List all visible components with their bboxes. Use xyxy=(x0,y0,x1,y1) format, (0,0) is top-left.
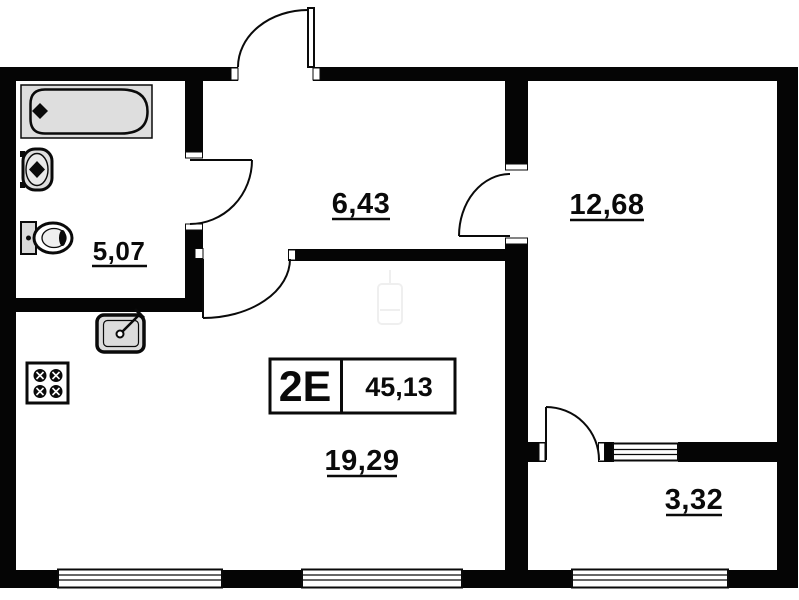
label-balcony: 3,32 xyxy=(665,484,723,516)
wall-bathroom-right-upper xyxy=(185,81,203,158)
unit-total-area: 45,13 xyxy=(365,372,433,402)
wall-bathroom-bottom xyxy=(0,298,203,312)
door-bathroom xyxy=(190,160,252,224)
toilet xyxy=(21,222,72,254)
label-living-kitchen: 19,29 xyxy=(324,445,399,477)
bathroom-area-label: 5,07 xyxy=(93,236,146,266)
bathtub xyxy=(21,85,152,138)
unit-info-box: 2E 45,13 xyxy=(270,359,455,413)
kitchen-sink xyxy=(97,309,144,352)
wall-living-top xyxy=(288,249,507,261)
wall-left xyxy=(0,67,16,588)
door-balcony xyxy=(546,407,599,460)
window-balcony-wall xyxy=(613,444,678,461)
door-entrance xyxy=(238,8,314,67)
wall-bottom-2 xyxy=(222,570,302,588)
sink-drain xyxy=(117,331,124,338)
stove xyxy=(27,363,68,403)
label-bathroom: 5,07 xyxy=(92,236,147,266)
bedroom-area-label: 12,68 xyxy=(569,189,644,221)
window-living xyxy=(302,570,462,588)
door-bedroom xyxy=(459,174,510,236)
wall-divider-upper xyxy=(505,81,528,170)
floor-plan: 5,07 6,43 12,68 19,29 3,32 2E 45,13 xyxy=(0,0,799,600)
wall-divider-lower xyxy=(505,238,528,587)
wall-bottom-4 xyxy=(728,570,798,588)
wall-bottom-1 xyxy=(0,570,58,588)
label-bedroom: 12,68 xyxy=(569,189,644,221)
hallway-area-label: 6,43 xyxy=(332,188,390,220)
unit-type-label: 2E xyxy=(279,363,332,411)
balcony-area-label: 3,32 xyxy=(665,484,723,516)
washbasin xyxy=(20,149,52,190)
window-balcony-bottom xyxy=(572,570,728,588)
wall-right xyxy=(777,67,798,588)
watermark-mark xyxy=(378,270,402,324)
label-hallway: 6,43 xyxy=(332,188,390,220)
window-kitchen xyxy=(58,570,222,588)
wall-balcony-3 xyxy=(678,442,777,462)
door-living xyxy=(203,259,290,318)
wall-top-left xyxy=(0,67,238,81)
living-area-label: 19,29 xyxy=(324,445,399,477)
wall-top-right xyxy=(313,67,798,81)
